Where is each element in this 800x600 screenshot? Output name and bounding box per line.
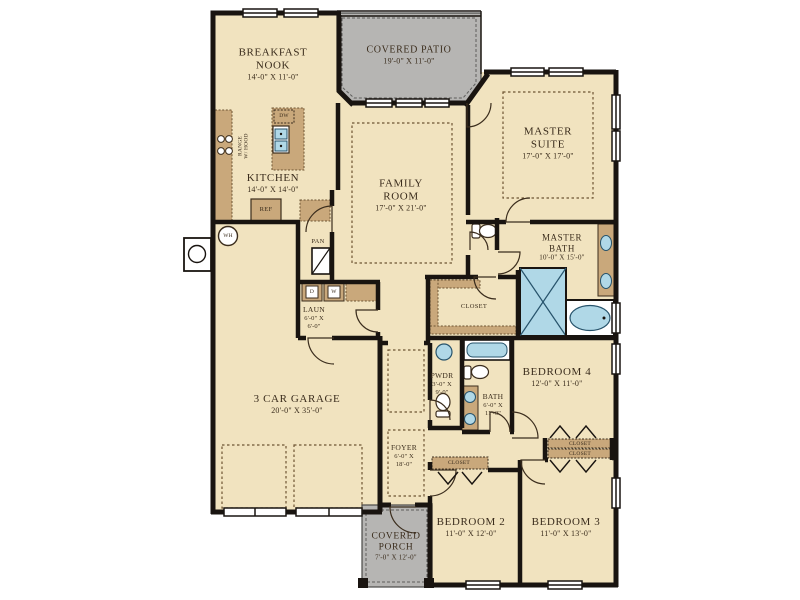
counter-by-pantry [300, 200, 330, 221]
room-name: FAMILY [375, 177, 427, 190]
room-dims: 11'-0" [483, 409, 504, 417]
room-label-foyer: FOYER 6'-0" X 18'-0" [391, 444, 417, 468]
master-toilet [472, 224, 497, 238]
equipment-pad [184, 238, 211, 271]
room-label-laundry: LAUN 6'-0" X 6'-0" [303, 306, 325, 330]
room-name: NOOK [239, 59, 308, 72]
window [612, 478, 620, 508]
room-name: BREAKFAST [239, 46, 308, 59]
room-name: PORCH [371, 543, 420, 554]
window [396, 99, 422, 107]
room-dims: 12'-0" X 11'-0" [523, 379, 592, 388]
room-dims: 6'-0" [303, 322, 325, 330]
room-name: 3 CAR GARAGE [254, 393, 341, 406]
kitchen-counter-left [215, 110, 232, 222]
refrigerator-label: REF [260, 206, 273, 214]
dryer-label: D [310, 289, 314, 295]
window [243, 9, 277, 17]
room-label-bedroom3-closet: CLOSET [569, 451, 591, 457]
room-name: BATH [539, 243, 584, 254]
powder-sink [436, 344, 452, 360]
room-name: CLOSET [448, 460, 470, 466]
room-dims: 17'-0" X 21'-0" [375, 203, 427, 212]
room-dims: 19'-0" X 11'-0" [367, 56, 452, 65]
window [549, 68, 583, 76]
dishwasher-label: DW [279, 113, 289, 119]
laundry-counter [346, 283, 378, 301]
master-sink-2 [601, 274, 612, 289]
room-name: LAUN [303, 306, 325, 315]
window [284, 9, 318, 17]
window [612, 344, 620, 374]
island-cooktop [273, 126, 289, 153]
room-dims: 3'-0" X [431, 381, 454, 389]
floor-plan-drawing [0, 0, 800, 600]
floor-plan: BREAKFAST NOOK 14'-0" X 11'-0" COVERED P… [0, 0, 800, 600]
washer-label: W [331, 289, 336, 295]
garage-door [296, 508, 362, 516]
room-label-bath: BATH 6'-0" X 11'-0" [483, 393, 504, 417]
window [612, 303, 620, 333]
room-label-master-bath: MASTER BATH 10'-0" X 15'-0" [539, 232, 584, 261]
room-name: BEDROOM 4 [523, 366, 592, 379]
room-label-covered-porch: COVERED PORCH 7'-0" X 12'-0" [371, 532, 420, 563]
room-name: PAN [311, 238, 324, 246]
appliance-text: WH [223, 233, 233, 239]
room-label-kitchen: KITCHEN 14'-0" X 14'-0" [247, 172, 299, 194]
room-dims: 11'-0" X 12'-0" [437, 529, 506, 538]
room-dims: 10'-0" X 15'-0" [539, 253, 584, 261]
room-dims: 6'-0" X [391, 453, 417, 461]
room-label-breakfast-nook: BREAKFAST NOOK 14'-0" X 11'-0" [239, 46, 308, 81]
appliance-text: D [310, 289, 314, 295]
room-name: BATH [483, 393, 504, 402]
room-name: BEDROOM 2 [437, 516, 506, 529]
window [548, 581, 582, 589]
room-dims: 17'-0" X 17'-0" [522, 151, 574, 160]
room-dims: 9'-0" [431, 388, 454, 396]
hall-bath-sink-2 [465, 414, 476, 425]
room-name: SUITE [522, 138, 574, 151]
room-label-pantry: PAN [311, 238, 324, 246]
window [612, 95, 620, 129]
room-name: CLOSET [569, 451, 591, 457]
appliance-text: REF [260, 206, 273, 214]
room-name: MASTER [539, 232, 584, 243]
window [425, 99, 449, 107]
window [612, 131, 620, 161]
room-label-covered-patio: COVERED PATIO 19'-0" X 11'-0" [367, 44, 452, 65]
room-name: BEDROOM 3 [532, 516, 601, 529]
appliance-text: W [331, 289, 336, 295]
room-label-bedroom2: BEDROOM 2 11'-0" X 12'-0" [437, 516, 506, 538]
window [366, 99, 392, 107]
pantry-shelf [312, 248, 330, 274]
room-dims: 6'-0" X [483, 402, 504, 410]
master-tub [566, 300, 614, 336]
room-name: MASTER [522, 125, 574, 138]
room-dims: 6'-0" X [303, 315, 325, 323]
room-dims: 11'-0" X 13'-0" [532, 529, 601, 538]
room-dims: 7'-0" X 12'-0" [371, 554, 420, 562]
room-label-bedroom2-closet: CLOSET [448, 460, 470, 466]
room-name: ROOM [375, 190, 427, 203]
room-name: PWDR [431, 372, 454, 381]
garage-door [224, 508, 286, 516]
room-label-garage: 3 CAR GARAGE 20'-0" X 35'-0" [254, 393, 341, 415]
range-hood-label: RANGE W/ HOOD [238, 133, 251, 158]
room-name: COVERED PATIO [367, 44, 452, 56]
room-name: KITCHEN [247, 172, 299, 185]
master-sink-1 [601, 236, 612, 251]
hall-bath-toilet [464, 366, 489, 380]
room-dims: 14'-0" X 11'-0" [239, 72, 308, 81]
room-label-master-closet: CLOSET [461, 303, 487, 311]
room-name: COVERED [371, 532, 420, 543]
room-label-bedroom4-closet: CLOSET [569, 441, 591, 447]
room-label-powder: PWDR 3'-0" X 9'-0" [431, 372, 454, 396]
window [466, 581, 500, 589]
appliance-text: DW [279, 113, 289, 119]
master-shower [520, 268, 566, 336]
room-name: CLOSET [569, 441, 591, 447]
room-dims: 20'-0" X 35'-0" [254, 406, 341, 415]
room-label-master-suite: MASTER SUITE 17'-0" X 17'-0" [522, 125, 574, 160]
room-dims: 18'-0" [391, 460, 417, 468]
water-heater-label: WH [223, 233, 233, 239]
room-label-family-room: FAMILY ROOM 17'-0" X 21'-0" [375, 177, 427, 212]
room-label-bedroom3: BEDROOM 3 11'-0" X 13'-0" [532, 516, 601, 538]
room-dims: 14'-0" X 14'-0" [247, 185, 299, 194]
hall-bath-sink-1 [465, 392, 476, 403]
window [511, 68, 544, 76]
room-name: CLOSET [461, 303, 487, 311]
appliance-text: W/ HOOD [244, 133, 250, 158]
room-label-bedroom4: BEDROOM 4 12'-0" X 11'-0" [523, 366, 592, 388]
room-name: FOYER [391, 444, 417, 453]
hall-bath-tub [464, 340, 510, 360]
